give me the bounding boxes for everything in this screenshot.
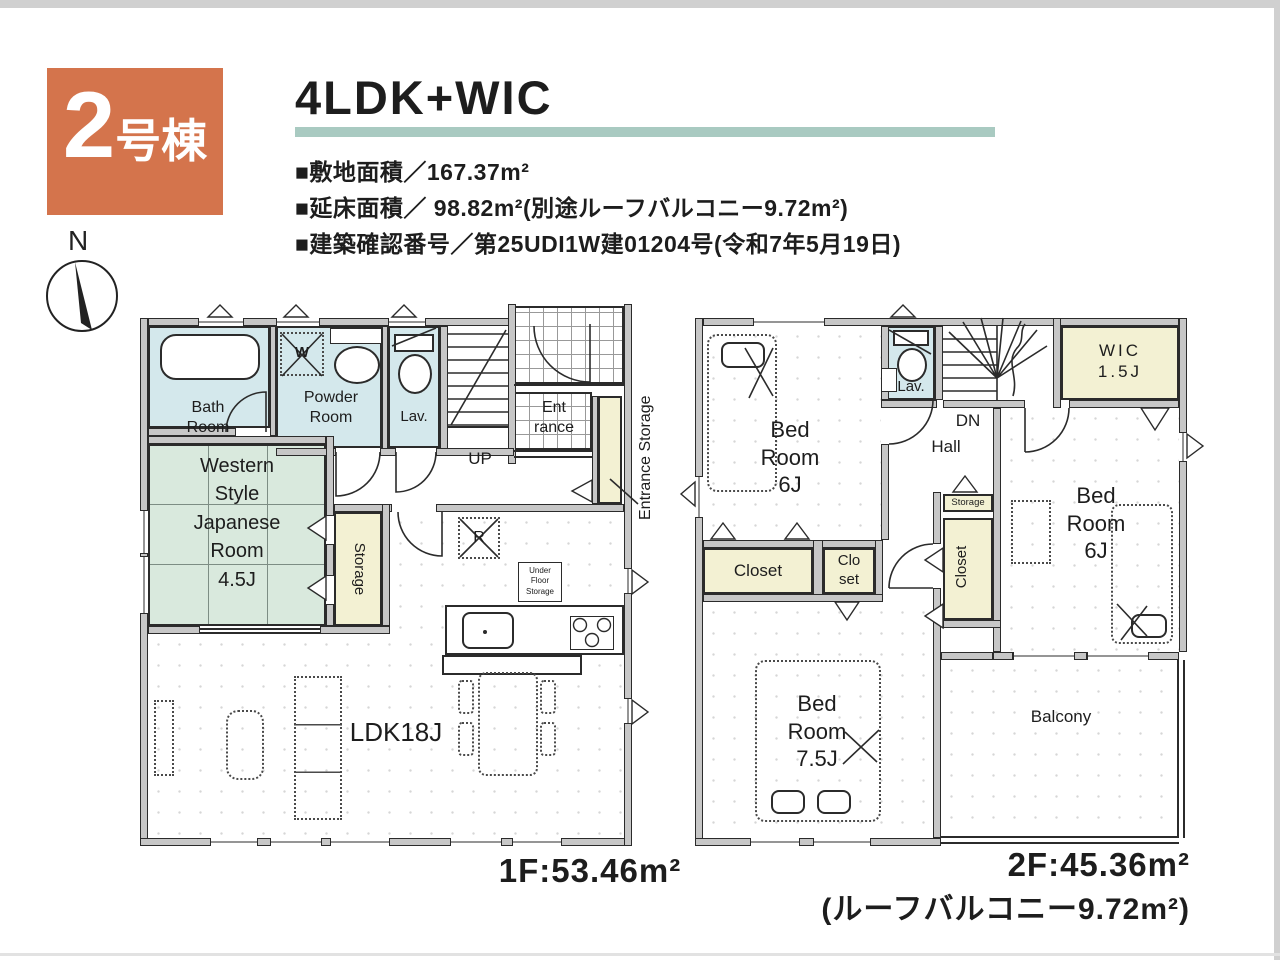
bathroom-label: Bath Room (158, 398, 258, 438)
floor1-plan: Bath Room Powder Room Lav. W UP Ent ranc… (140, 304, 632, 850)
fridge-label: R (458, 528, 500, 548)
floor2-plan: Bed Room 6J Lav. DN Hall WIC 1.5J Bed Ro… (695, 304, 1187, 850)
unit-suffix: 号棟 (115, 118, 207, 164)
lavatory-2f-label: Lav. (887, 378, 935, 397)
title-underline (295, 127, 995, 137)
bedroom-6j-b-label: Bed Room 6J (1031, 482, 1161, 565)
unit-number: 2 (63, 78, 115, 172)
lavatory-1f-label: Lav. (388, 408, 440, 427)
floor2-area-label: 2F:45.36m² (900, 846, 1190, 884)
floor1-area-label: 1F:53.46m² (440, 852, 740, 890)
washer-label: W (280, 344, 324, 363)
stairs-down-label: DN (943, 410, 993, 431)
scan-edge-right (1274, 0, 1280, 960)
wic-label: WIC 1.5J (1061, 340, 1179, 383)
compass-icon: N (28, 218, 138, 343)
bedroom-6j-a-label: Bed Room 6J (735, 416, 845, 499)
spec-site-area: ■敷地面積／167.37m² (295, 153, 529, 187)
ldk-label: LDK18J (336, 716, 456, 749)
bedroom-75j-label: Bed Room 7.5J (747, 690, 887, 773)
floorplan-sheet: 2 号棟 4LDK+WIC ■敷地面積／167.37m² ■延床面積／ 98.8… (0, 0, 1280, 960)
compass-north-label: N (68, 225, 88, 256)
stairs-up-label: UP (454, 448, 506, 469)
floor2-area-note: (ルーフバルコニー9.72m²) (780, 884, 1190, 928)
closet-c-label: Closet (953, 518, 972, 616)
scan-edge-top (0, 0, 1280, 8)
storage-1f-label: Storage (349, 516, 368, 622)
spec-confirmation-number: ■建築確認番号／第25UDI1W建01204号(令和7年5月19日) (295, 225, 901, 259)
closet-a-label: Closet (703, 560, 813, 581)
plan-type-title: 4LDK+WIC (295, 70, 553, 125)
entrance-label: Ent rance (518, 398, 590, 438)
under-floor-storage-label: Under Floor Storage (519, 566, 561, 597)
unit-badge: 2 号棟 (47, 68, 223, 215)
entrance-storage-label: Entrance Storage (636, 368, 656, 520)
scan-edge-bottom (0, 953, 1280, 956)
balcony-label: Balcony (991, 706, 1131, 727)
closet-b-label: Clo set (823, 552, 875, 590)
spec-floor-area: ■延床面積／ 98.82m²(別途ルーフバルコニー9.72m²) (295, 189, 848, 223)
powder-room-label: Powder Room (286, 388, 376, 428)
hall-label: Hall (911, 436, 981, 457)
japanese-room-label: Western Style Japanese Room 4.5J (154, 452, 320, 594)
storage-2f-label: Storage (943, 497, 993, 509)
